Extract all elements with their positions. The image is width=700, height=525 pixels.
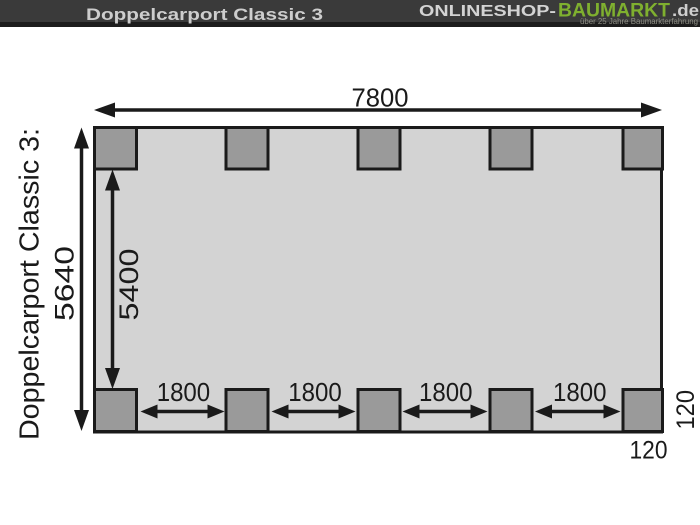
svg-text:über 25 Jahre Baumarkterfahrun: über 25 Jahre Baumarkterfahrung — [580, 16, 698, 26]
svg-text:5640: 5640 — [50, 246, 80, 321]
svg-text:1800: 1800 — [419, 377, 473, 407]
svg-text:5400: 5400 — [114, 249, 144, 321]
svg-text:120: 120 — [630, 437, 668, 465]
svg-text:1800: 1800 — [157, 377, 211, 407]
svg-text:7800: 7800 — [352, 84, 409, 112]
svg-text:Doppelcarport Classic 3:: Doppelcarport Classic 3: — [14, 128, 45, 440]
svg-text:1800: 1800 — [553, 377, 607, 407]
svg-text:1800: 1800 — [288, 377, 342, 407]
svg-text:Doppelcarport Classic 3: Doppelcarport Classic 3 — [86, 5, 323, 24]
svg-text:ONLINESHOP-: ONLINESHOP- — [419, 3, 556, 20]
svg-text:120: 120 — [672, 390, 700, 430]
